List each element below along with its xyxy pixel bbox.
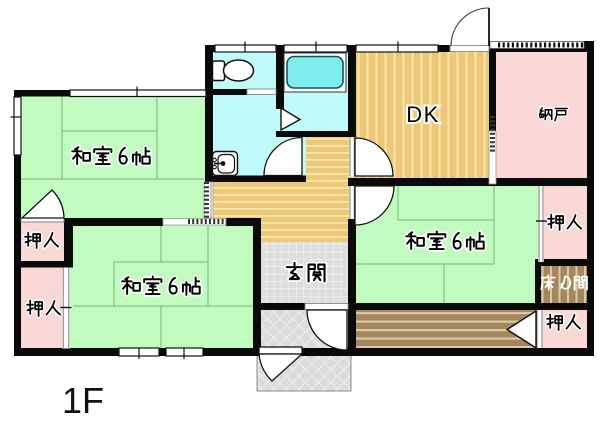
svg-text:DK: DK <box>406 102 440 127</box>
svg-text:1F: 1F <box>62 380 104 421</box>
